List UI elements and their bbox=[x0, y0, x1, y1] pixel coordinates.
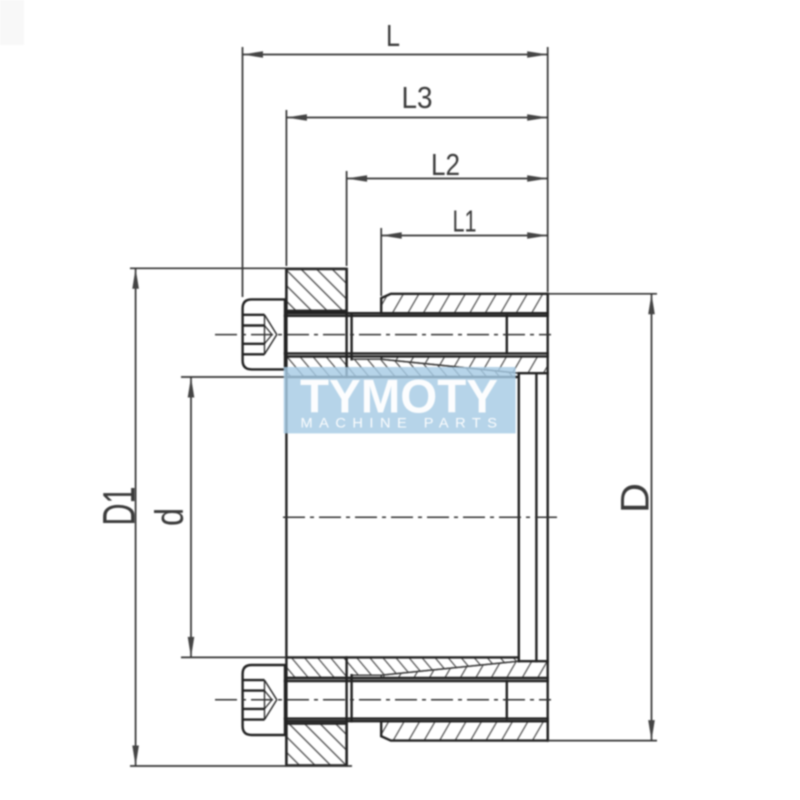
svg-text:MACHINE PARTS: MACHINE PARTS bbox=[301, 416, 504, 431]
svg-text:L: L bbox=[386, 18, 400, 53]
svg-text:L2: L2 bbox=[431, 147, 460, 182]
svg-text:D: D bbox=[614, 483, 658, 513]
svg-text:d: d bbox=[148, 508, 192, 526]
svg-text:L1: L1 bbox=[453, 204, 477, 239]
svg-text:D1: D1 bbox=[94, 487, 145, 526]
svg-text:L3: L3 bbox=[402, 80, 433, 115]
